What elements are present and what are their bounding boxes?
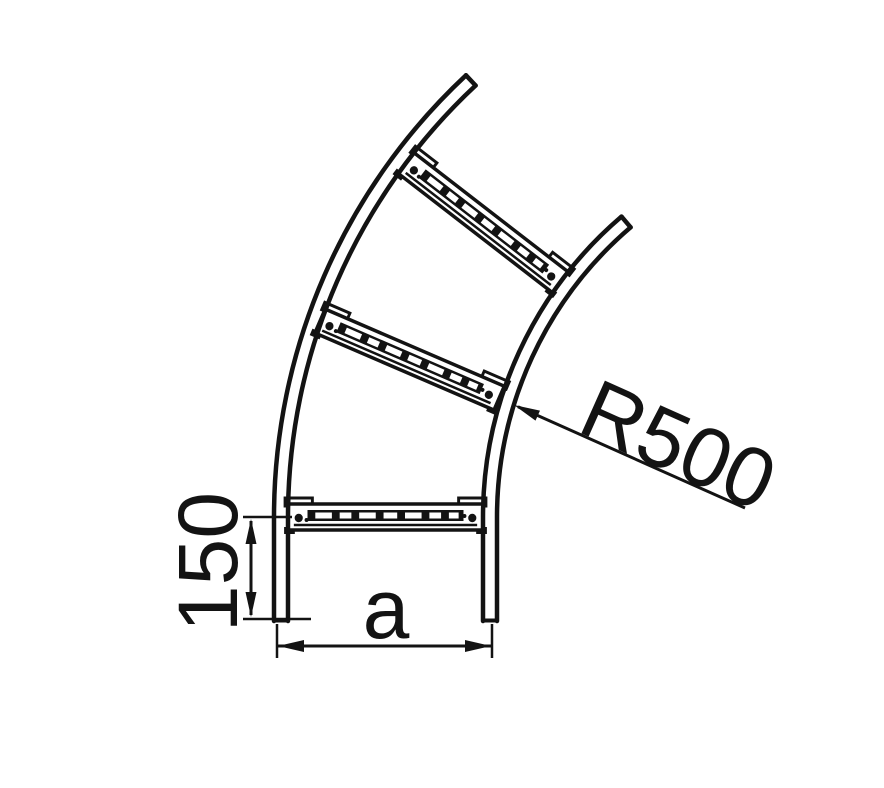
arrowhead-radius-icon xyxy=(514,405,540,421)
arrowhead-left-icon xyxy=(278,640,304,652)
radius-dimension: R500 xyxy=(514,361,789,529)
radius-dimension-label: R500 xyxy=(568,361,790,529)
ladder-bend xyxy=(274,75,631,621)
cable-ladder-bend-drawing: 150 a R500 xyxy=(0,0,884,788)
rung-middle xyxy=(310,302,511,415)
inner-rail-top-cut xyxy=(622,217,631,228)
rung-top xyxy=(393,146,575,299)
width-dimension-label: a xyxy=(363,562,410,656)
rung-bottom xyxy=(284,498,487,534)
arrowhead-right-icon xyxy=(465,640,491,652)
outer-rail-top-cut xyxy=(466,75,476,85)
drawing-canvas: 150 a R500 xyxy=(0,0,884,788)
tangent-length-dimension-label: 150 xyxy=(161,492,255,632)
width-dimension: a xyxy=(277,562,492,658)
